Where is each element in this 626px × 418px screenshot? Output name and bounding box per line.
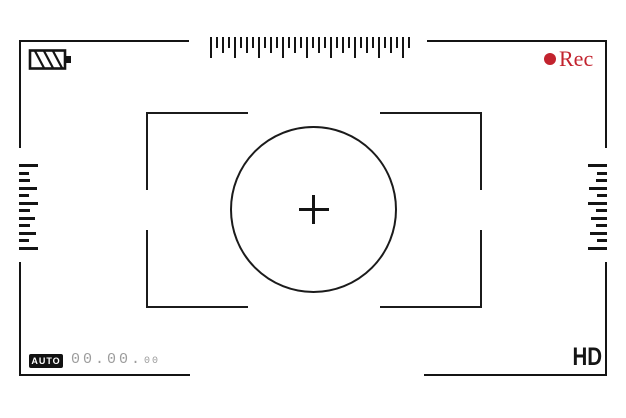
scale-tick xyxy=(597,194,607,197)
frame-top-left-vertical xyxy=(19,40,21,148)
ruler-tick xyxy=(306,37,308,58)
focus-bracket-top-left xyxy=(146,112,248,190)
focus-bracket-bottom-right xyxy=(380,230,482,308)
focus-bracket-bottom-left xyxy=(146,230,248,308)
scale-tick xyxy=(19,172,29,175)
scale-tick xyxy=(19,247,38,250)
ruler-tick xyxy=(216,37,218,48)
scale-tick xyxy=(596,224,607,227)
frame-bottom-left-horizontal xyxy=(19,374,190,376)
auto-mode-badge[interactable]: AUTO xyxy=(29,354,63,368)
scale-tick xyxy=(590,232,607,235)
ruler-tick xyxy=(252,37,254,48)
ruler-tick xyxy=(258,37,260,58)
battery-icon xyxy=(28,48,72,77)
ruler-tick xyxy=(366,37,368,53)
frame-bottom-left-vertical xyxy=(19,262,21,376)
ruler-tick xyxy=(228,37,230,48)
ruler-tick xyxy=(300,37,302,48)
scale-tick xyxy=(19,179,30,182)
scale-tick xyxy=(19,164,38,167)
left-scale xyxy=(19,164,38,250)
scale-tick xyxy=(588,164,607,167)
scale-tick xyxy=(588,247,607,250)
ruler-tick xyxy=(372,37,374,48)
frame-top-left-horizontal xyxy=(19,40,189,42)
scale-tick xyxy=(19,194,29,197)
ruler-tick xyxy=(246,37,248,53)
scale-tick xyxy=(19,209,30,212)
scale-tick xyxy=(596,179,607,182)
ruler-tick xyxy=(360,37,362,48)
ruler-tick xyxy=(330,37,332,58)
time-counter-frames: 00 xyxy=(144,356,160,367)
rec-label: Rec xyxy=(559,49,593,69)
ruler-tick xyxy=(408,37,410,48)
ruler-tick xyxy=(210,37,212,58)
ruler-tick xyxy=(384,37,386,48)
scale-tick xyxy=(19,217,35,220)
scale-tick xyxy=(597,239,607,242)
ruler-tick xyxy=(390,37,392,53)
viewfinder: Rec AUTO 00.00. 00 HD xyxy=(0,0,626,418)
hd-quality-badge[interactable]: HD xyxy=(572,343,602,372)
scale-tick xyxy=(19,232,36,235)
focus-bracket-top-right xyxy=(380,112,482,190)
ruler-tick xyxy=(402,37,404,58)
ruler-tick xyxy=(264,37,266,48)
ruler-tick xyxy=(294,37,296,53)
ruler-tick xyxy=(348,37,350,48)
ruler-tick xyxy=(336,37,338,48)
ruler-tick xyxy=(234,37,236,58)
crosshair-icon-vertical xyxy=(312,195,315,224)
ruler-tick xyxy=(276,37,278,48)
scale-tick xyxy=(19,224,30,227)
frame-top-right-vertical xyxy=(605,40,607,148)
ruler-tick xyxy=(240,37,242,48)
ruler-tick xyxy=(396,37,398,48)
scale-tick xyxy=(591,217,607,220)
ruler-tick xyxy=(318,37,320,53)
scale-tick xyxy=(597,172,607,175)
scale-tick xyxy=(19,202,38,205)
scale-tick xyxy=(596,209,607,212)
scale-tick xyxy=(19,239,29,242)
time-counter: 00.00. 00 xyxy=(71,351,160,368)
frame-top-right-horizontal xyxy=(427,40,607,42)
ruler-tick xyxy=(312,37,314,48)
scale-tick xyxy=(588,202,607,205)
ruler-tick xyxy=(270,37,272,53)
scale-tick xyxy=(589,187,607,190)
ruler-tick xyxy=(222,37,224,53)
record-dot-icon xyxy=(544,53,556,65)
ruler-tick xyxy=(282,37,284,58)
right-scale xyxy=(588,164,607,250)
ruler-tick xyxy=(288,37,290,48)
top-ruler xyxy=(210,37,410,58)
ruler-tick xyxy=(378,37,380,58)
ruler-tick xyxy=(324,37,326,48)
ruler-tick xyxy=(354,37,356,58)
frame-bottom-right-horizontal xyxy=(424,374,607,376)
ruler-tick xyxy=(342,37,344,53)
time-counter-main: 00.00. xyxy=(71,351,143,368)
scale-tick xyxy=(19,187,37,190)
frame-bottom-right-vertical xyxy=(605,262,607,376)
rec-indicator[interactable]: Rec xyxy=(544,49,593,69)
